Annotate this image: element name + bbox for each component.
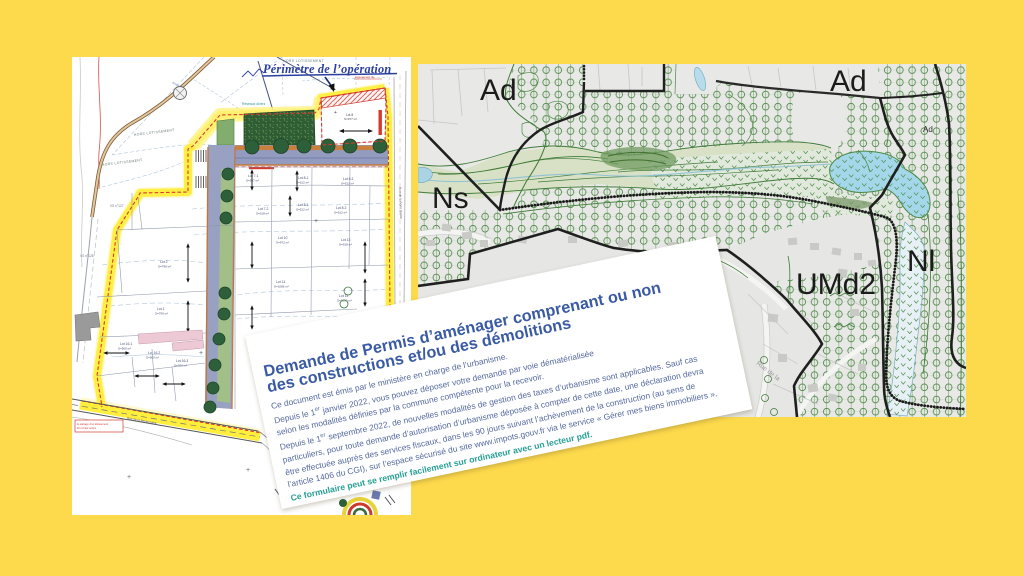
svg-text:Lot 8.1: Lot 8.1 bbox=[298, 203, 308, 207]
svg-text:Lot 16.1: Lot 16.1 bbox=[120, 342, 132, 346]
svg-text:Ad: Ad bbox=[480, 74, 517, 107]
svg-text:S=798 m²: S=798 m² bbox=[158, 265, 171, 269]
svg-text:S=512 m²: S=512 m² bbox=[334, 211, 347, 215]
svg-text:+: + bbox=[127, 474, 131, 481]
svg-text:+: + bbox=[199, 350, 203, 357]
svg-text:UMd2: UMd2 bbox=[796, 268, 876, 301]
svg-text:+: + bbox=[246, 467, 250, 474]
svg-text:lot et futur accès: lot et futur accès bbox=[77, 426, 97, 430]
svg-text:le partage d’un lotissement: le partage d’un lotissement bbox=[77, 422, 108, 426]
svg-text:S=512 m²: S=512 m² bbox=[296, 181, 309, 185]
svg-text:Ad: Ad bbox=[923, 125, 933, 134]
svg-text:Lot 1: Lot 1 bbox=[157, 307, 165, 311]
svg-text:Lot 8.1: Lot 8.1 bbox=[298, 176, 308, 180]
svg-text:S=518 m²: S=518 m² bbox=[256, 212, 269, 216]
svg-text:VS n°127: VS n°127 bbox=[110, 204, 124, 208]
svg-text:Réseaux divers: Réseaux divers bbox=[242, 102, 266, 106]
svg-text:Lot 16.2: Lot 16.2 bbox=[148, 351, 160, 355]
svg-text:Nl: Nl bbox=[907, 245, 935, 278]
svg-text:S=1080 m²: S=1080 m² bbox=[337, 299, 352, 303]
svg-text:Lot 2: Lot 2 bbox=[160, 260, 168, 264]
svg-text:Lot 8.2: Lot 8.2 bbox=[336, 206, 346, 210]
svg-text:+: + bbox=[314, 218, 318, 225]
svg-text:Lot 16.3: Lot 16.3 bbox=[176, 359, 188, 363]
svg-text:+: + bbox=[334, 110, 337, 116]
svg-text:S=557 m²: S=557 m² bbox=[246, 179, 259, 183]
svg-text:S=512 m²: S=512 m² bbox=[341, 182, 354, 186]
svg-text:S=799 m²: S=799 m² bbox=[155, 312, 168, 316]
svg-text:Lot 7.1: Lot 7.1 bbox=[248, 174, 258, 178]
svg-text:VS n°128: VS n°128 bbox=[80, 254, 94, 258]
svg-text:Lot 11: Lot 11 bbox=[276, 280, 285, 284]
svg-text:S=918 m²: S=918 m² bbox=[339, 243, 352, 247]
svg-text:Lot 8.2: Lot 8.2 bbox=[343, 177, 353, 181]
svg-text:Lot 7.2: Lot 7.2 bbox=[258, 207, 268, 211]
svg-text:Ad: Ad bbox=[830, 65, 867, 98]
svg-text:S=1086 m²: S=1086 m² bbox=[274, 285, 289, 289]
svg-text:Ns: Ns bbox=[432, 182, 469, 215]
svg-text:Lot 10: Lot 10 bbox=[278, 236, 288, 240]
svg-text:lotissement du: lotissement du bbox=[355, 75, 375, 79]
svg-text:S=512 m²: S=512 m² bbox=[296, 208, 309, 212]
svg-text:S=977 m²: S=977 m² bbox=[344, 117, 357, 121]
svg-text:S=972 m²: S=972 m² bbox=[276, 241, 289, 245]
svg-text:S=560 m²: S=560 m² bbox=[118, 347, 131, 351]
